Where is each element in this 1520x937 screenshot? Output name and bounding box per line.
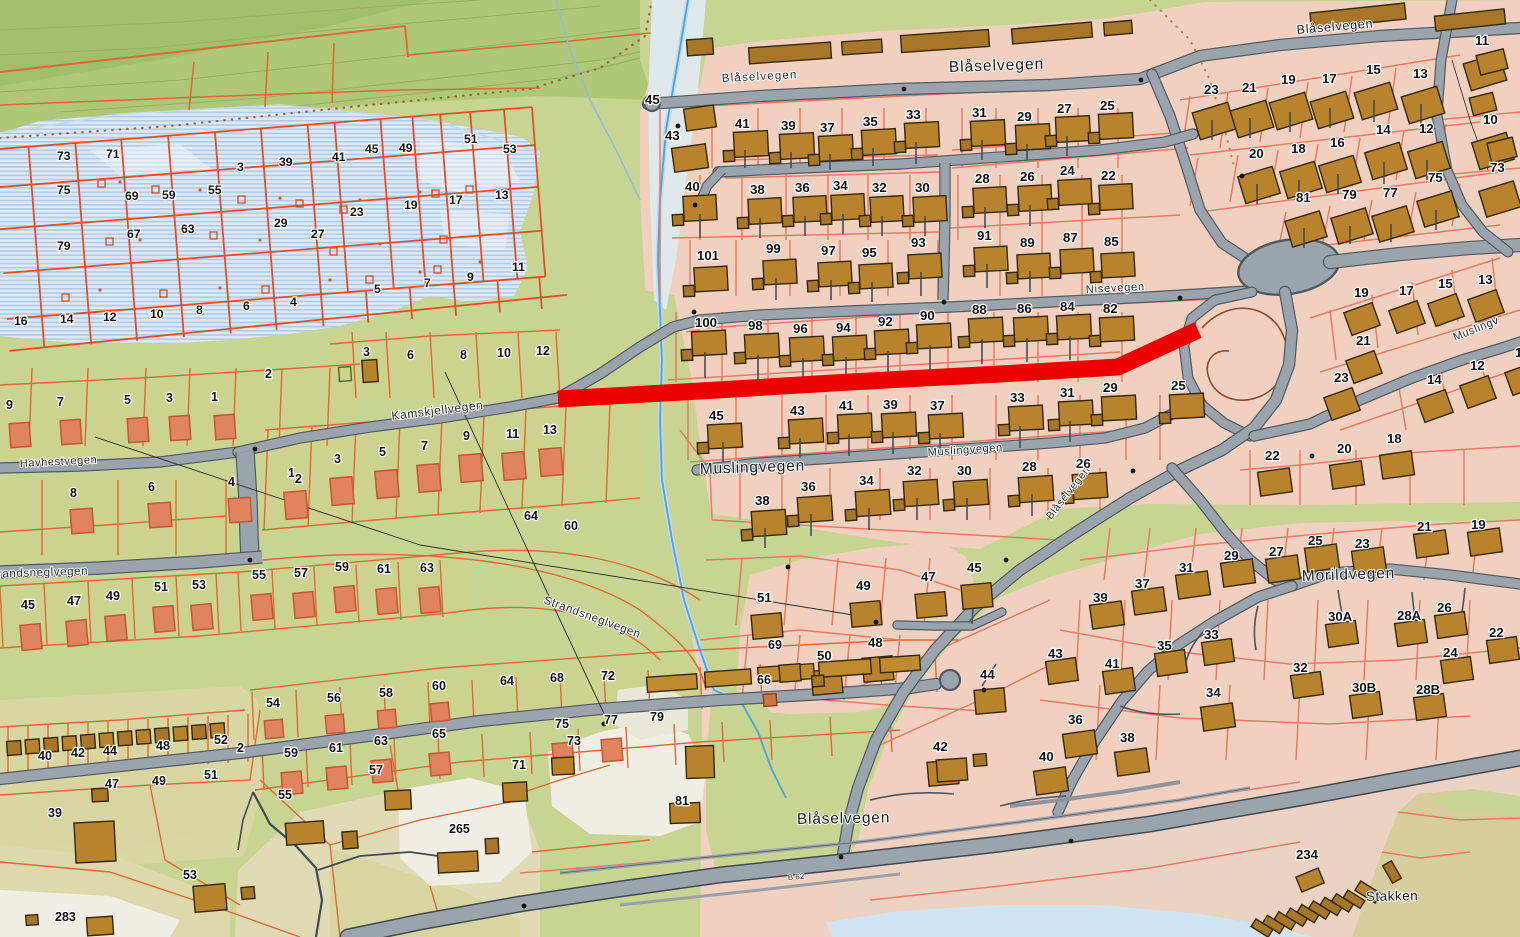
svg-text:38: 38: [1120, 730, 1135, 745]
svg-text:13: 13: [495, 188, 509, 202]
svg-text:28A: 28A: [1397, 608, 1422, 623]
svg-text:Blåselvegen: Blåselvegen: [949, 56, 1045, 76]
svg-text:81: 81: [675, 794, 689, 808]
svg-text:33: 33: [1204, 627, 1219, 642]
svg-text:12: 12: [1470, 358, 1485, 373]
svg-text:55: 55: [252, 568, 266, 582]
svg-text:12: 12: [1419, 121, 1434, 136]
svg-text:15: 15: [1366, 62, 1381, 77]
svg-text:36: 36: [1068, 712, 1083, 727]
svg-text:27: 27: [311, 227, 325, 241]
svg-text:51: 51: [464, 132, 478, 146]
svg-text:13: 13: [543, 423, 557, 437]
svg-text:5: 5: [124, 393, 131, 407]
svg-text:63: 63: [374, 734, 388, 748]
svg-text:11: 11: [1475, 33, 1489, 48]
svg-text:41: 41: [735, 116, 750, 131]
svg-text:32: 32: [872, 180, 887, 195]
svg-text:45: 45: [645, 92, 660, 107]
svg-text:B 62: B 62: [788, 872, 806, 882]
svg-text:61: 61: [377, 562, 391, 576]
svg-text:14: 14: [1376, 122, 1391, 137]
svg-text:28: 28: [1022, 459, 1037, 474]
svg-text:51: 51: [154, 580, 168, 594]
svg-text:16: 16: [1330, 135, 1345, 150]
svg-text:10: 10: [1483, 112, 1498, 127]
svg-text:42: 42: [933, 739, 948, 754]
svg-text:8: 8: [196, 303, 203, 317]
svg-text:77: 77: [1383, 185, 1398, 200]
svg-text:47: 47: [921, 569, 936, 584]
svg-text:75: 75: [1428, 170, 1443, 185]
svg-text:42: 42: [71, 746, 85, 760]
svg-text:8: 8: [70, 486, 77, 500]
svg-text:37: 37: [820, 120, 835, 135]
svg-text:234: 234: [1296, 847, 1319, 862]
svg-text:40: 40: [1039, 749, 1054, 764]
svg-text:39: 39: [781, 118, 796, 133]
svg-text:39: 39: [48, 806, 62, 820]
svg-text:22: 22: [1101, 168, 1116, 183]
svg-text:91: 91: [977, 228, 992, 243]
svg-text:30B: 30B: [1352, 680, 1376, 695]
svg-text:69: 69: [125, 189, 139, 203]
svg-text:53: 53: [503, 142, 517, 156]
svg-text:29: 29: [1103, 380, 1118, 395]
svg-text:71: 71: [512, 758, 526, 772]
svg-text:100: 100: [695, 315, 717, 330]
svg-text:19: 19: [1281, 72, 1296, 87]
svg-text:21: 21: [1417, 519, 1432, 534]
svg-text:Stakken: Stakken: [1366, 888, 1419, 904]
svg-text:3: 3: [237, 160, 244, 174]
svg-text:1: 1: [211, 390, 218, 404]
svg-text:27: 27: [1269, 544, 1284, 559]
svg-text:95: 95: [862, 245, 877, 260]
svg-text:61: 61: [329, 741, 343, 755]
svg-text:17: 17: [449, 193, 463, 207]
svg-text:45: 45: [365, 142, 379, 156]
svg-text:66: 66: [757, 673, 771, 687]
svg-text:3: 3: [363, 345, 370, 359]
svg-text:9: 9: [463, 429, 470, 443]
svg-text:44: 44: [980, 667, 995, 682]
svg-text:73: 73: [567, 734, 581, 748]
svg-text:58: 58: [379, 686, 393, 700]
svg-text:23: 23: [1334, 370, 1349, 385]
svg-text:2: 2: [295, 472, 302, 486]
svg-text:22: 22: [1265, 448, 1280, 463]
svg-text:29: 29: [1017, 109, 1032, 124]
svg-text:2: 2: [237, 741, 244, 755]
svg-text:101: 101: [697, 248, 719, 263]
svg-text:21: 21: [1356, 333, 1371, 348]
svg-text:Blåselvegen: Blåselvegen: [797, 809, 891, 828]
svg-text:51: 51: [757, 590, 772, 605]
svg-text:59: 59: [284, 746, 298, 760]
svg-text:34: 34: [1206, 685, 1221, 700]
svg-text:5: 5: [374, 282, 381, 296]
svg-text:49: 49: [399, 141, 413, 155]
svg-text:7: 7: [421, 439, 428, 453]
svg-text:19: 19: [1471, 517, 1486, 532]
svg-text:11: 11: [506, 427, 519, 441]
svg-text:29: 29: [274, 216, 288, 230]
svg-text:48: 48: [156, 739, 170, 753]
svg-text:41: 41: [839, 398, 854, 413]
svg-text:41: 41: [332, 150, 346, 164]
svg-text:38: 38: [750, 182, 765, 197]
svg-text:38: 38: [755, 493, 770, 508]
svg-text:37: 37: [930, 398, 945, 413]
svg-text:53: 53: [192, 578, 206, 592]
svg-text:14: 14: [60, 312, 74, 326]
svg-text:283: 283: [55, 910, 76, 924]
svg-text:67: 67: [127, 227, 141, 241]
svg-text:2: 2: [265, 367, 272, 381]
svg-text:49: 49: [106, 589, 120, 603]
svg-text:82: 82: [1103, 301, 1118, 316]
svg-text:13: 13: [1413, 66, 1428, 81]
svg-text:55: 55: [208, 183, 222, 197]
svg-text:85: 85: [1104, 234, 1119, 249]
svg-text:60: 60: [564, 519, 578, 533]
svg-text:59: 59: [162, 188, 176, 202]
svg-text:79: 79: [57, 239, 71, 253]
svg-text:64: 64: [524, 509, 538, 523]
svg-text:50: 50: [817, 648, 832, 663]
svg-text:90: 90: [920, 308, 935, 323]
svg-text:36: 36: [801, 479, 816, 494]
svg-text:88: 88: [972, 302, 987, 317]
svg-text:4: 4: [228, 475, 235, 489]
svg-text:45: 45: [709, 408, 724, 423]
svg-text:17: 17: [1322, 71, 1337, 86]
svg-text:25: 25: [1308, 533, 1323, 548]
svg-text:27: 27: [1057, 101, 1072, 116]
svg-text:65: 65: [432, 727, 446, 741]
svg-text:68: 68: [550, 671, 564, 685]
svg-text:54: 54: [266, 696, 280, 710]
svg-text:63: 63: [181, 222, 195, 236]
svg-text:47: 47: [67, 594, 81, 608]
svg-text:6: 6: [407, 348, 414, 362]
svg-text:1: 1: [288, 466, 295, 480]
svg-text:32: 32: [907, 463, 922, 478]
svg-text:19: 19: [404, 198, 418, 212]
svg-text:86: 86: [1017, 301, 1032, 316]
svg-text:10: 10: [150, 307, 164, 321]
svg-text:64: 64: [500, 674, 514, 688]
svg-text:40: 40: [38, 749, 52, 763]
svg-text:4: 4: [290, 295, 297, 309]
svg-text:63: 63: [420, 561, 434, 575]
svg-text:52: 52: [214, 733, 228, 747]
svg-text:98: 98: [748, 318, 763, 333]
svg-text:69: 69: [768, 638, 782, 652]
svg-text:24: 24: [1060, 163, 1075, 178]
svg-text:24: 24: [1443, 645, 1458, 660]
svg-text:73: 73: [1490, 160, 1505, 175]
svg-text:97: 97: [821, 243, 836, 258]
svg-text:75: 75: [555, 717, 569, 731]
svg-text:96: 96: [793, 321, 808, 336]
svg-text:57: 57: [294, 566, 308, 580]
svg-text:7: 7: [57, 395, 64, 409]
svg-text:18: 18: [1291, 141, 1306, 156]
svg-text:16: 16: [14, 314, 28, 328]
svg-text:53: 53: [183, 868, 197, 882]
svg-text:6: 6: [148, 480, 155, 494]
svg-text:31: 31: [1060, 385, 1075, 400]
svg-text:20: 20: [1249, 146, 1264, 161]
svg-text:35: 35: [863, 114, 878, 129]
svg-text:94: 94: [836, 320, 851, 335]
svg-text:32: 32: [1293, 660, 1308, 675]
svg-text:26: 26: [1076, 456, 1091, 471]
svg-text:12: 12: [536, 344, 550, 358]
svg-text:35: 35: [1157, 638, 1172, 653]
svg-text:49: 49: [856, 578, 871, 593]
svg-text:40: 40: [685, 179, 700, 194]
svg-text:9: 9: [467, 270, 474, 284]
svg-text:48: 48: [868, 635, 883, 650]
svg-text:93: 93: [911, 235, 926, 250]
svg-text:79: 79: [650, 710, 664, 724]
svg-text:72: 72: [601, 669, 615, 683]
svg-text:29: 29: [1224, 548, 1239, 563]
svg-text:30: 30: [957, 463, 972, 478]
svg-text:21: 21: [1242, 80, 1257, 95]
svg-text:34: 34: [833, 178, 848, 193]
svg-text:92: 92: [878, 314, 893, 329]
svg-text:5: 5: [379, 445, 386, 459]
svg-text:59: 59: [335, 560, 349, 574]
svg-text:55: 55: [278, 788, 292, 802]
svg-text:81: 81: [1296, 190, 1311, 205]
svg-text:37: 37: [1135, 576, 1150, 591]
svg-text:10: 10: [497, 346, 511, 360]
svg-text:30: 30: [915, 180, 930, 195]
svg-text:33: 33: [906, 107, 921, 122]
svg-text:23: 23: [350, 205, 364, 219]
svg-text:26: 26: [1020, 169, 1035, 184]
svg-text:3: 3: [334, 452, 341, 466]
svg-text:25: 25: [1100, 98, 1115, 113]
svg-text:99: 99: [766, 241, 781, 256]
svg-text:19: 19: [1354, 285, 1369, 300]
svg-text:45: 45: [967, 560, 982, 575]
svg-text:39: 39: [1093, 590, 1108, 605]
svg-text:31: 31: [1179, 560, 1194, 575]
svg-text:43: 43: [1048, 646, 1063, 661]
svg-text:20: 20: [1337, 441, 1352, 456]
svg-text:10: 10: [1515, 345, 1520, 360]
svg-text:87: 87: [1063, 230, 1078, 245]
svg-text:31: 31: [972, 105, 987, 120]
svg-text:13: 13: [1478, 272, 1493, 287]
svg-text:22: 22: [1489, 625, 1504, 640]
svg-text:34: 34: [859, 473, 874, 488]
svg-text:265: 265: [449, 822, 470, 836]
svg-text:23: 23: [1204, 82, 1219, 97]
svg-text:3: 3: [166, 391, 173, 405]
svg-text:11: 11: [512, 260, 525, 274]
svg-text:33: 33: [1010, 390, 1025, 405]
svg-text:28: 28: [975, 171, 990, 186]
svg-text:23: 23: [1355, 536, 1370, 551]
svg-text:25: 25: [1171, 378, 1186, 393]
svg-text:77: 77: [604, 713, 618, 727]
svg-text:39: 39: [883, 397, 898, 412]
svg-text:75: 75: [57, 183, 71, 197]
svg-text:43: 43: [665, 128, 680, 143]
svg-text:60: 60: [432, 679, 446, 693]
svg-text:6: 6: [243, 299, 250, 313]
svg-text:28B: 28B: [1416, 682, 1440, 697]
svg-text:44: 44: [103, 744, 117, 758]
svg-text:56: 56: [327, 691, 341, 705]
svg-text:Morildvegen: Morildvegen: [1302, 565, 1396, 585]
svg-text:18: 18: [1387, 431, 1402, 446]
svg-text:43: 43: [790, 403, 805, 418]
svg-text:26: 26: [1437, 600, 1452, 615]
svg-text:57: 57: [369, 763, 383, 777]
svg-text:45: 45: [21, 598, 35, 612]
svg-text:49: 49: [152, 774, 166, 788]
svg-text:17: 17: [1399, 283, 1414, 298]
svg-text:8: 8: [460, 348, 467, 362]
svg-text:7: 7: [424, 276, 431, 290]
svg-text:51: 51: [204, 768, 218, 782]
svg-text:47: 47: [105, 777, 119, 791]
svg-text:9: 9: [6, 398, 13, 412]
svg-text:39: 39: [279, 155, 293, 169]
svg-text:73: 73: [57, 149, 71, 163]
svg-text:14: 14: [1427, 372, 1442, 387]
svg-text:41: 41: [1105, 656, 1120, 671]
svg-text:30A: 30A: [1328, 609, 1353, 624]
svg-text:12: 12: [103, 310, 117, 324]
svg-text:71: 71: [106, 147, 120, 161]
svg-text:79: 79: [1342, 187, 1357, 202]
svg-text:36: 36: [795, 180, 810, 195]
svg-text:84: 84: [1060, 299, 1075, 314]
svg-text:15: 15: [1438, 276, 1453, 291]
svg-text:89: 89: [1020, 235, 1035, 250]
